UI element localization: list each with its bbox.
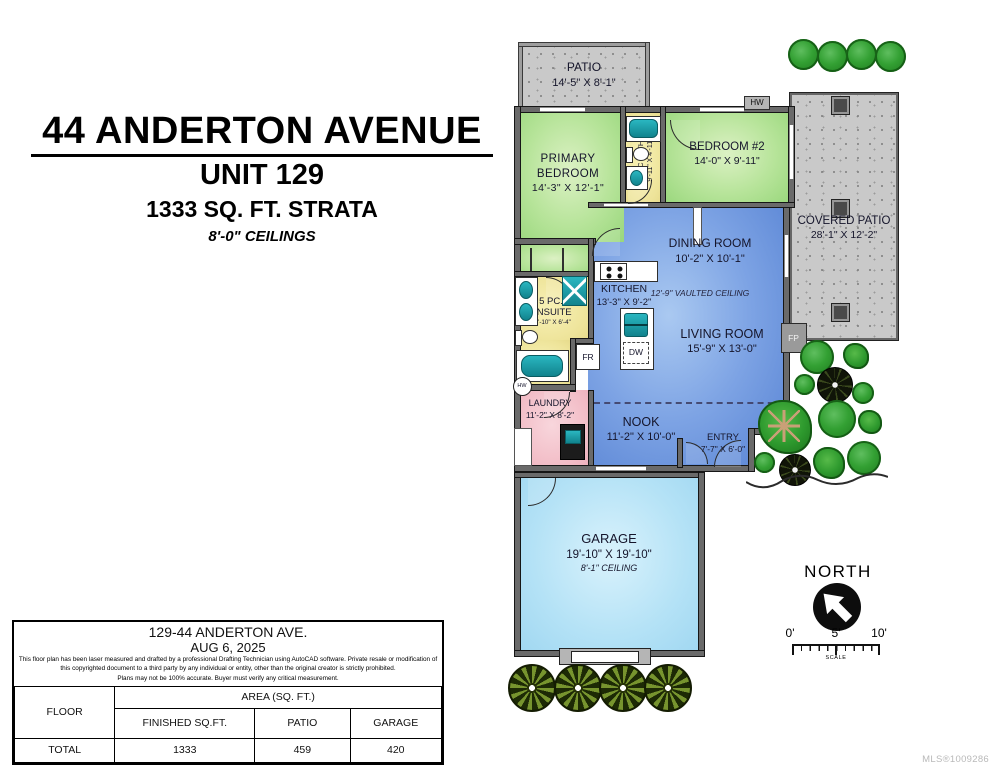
toilet-bowl bbox=[522, 330, 538, 344]
bush-icon bbox=[788, 39, 819, 70]
primary-dims: 14'-3" X 12'-1" bbox=[514, 182, 622, 196]
bathtub-basin bbox=[629, 119, 658, 138]
scale-tick-0: 0' bbox=[780, 626, 800, 642]
window bbox=[604, 203, 648, 207]
wall bbox=[514, 238, 596, 245]
wall bbox=[698, 472, 705, 657]
scale-tick-5: 5' bbox=[826, 626, 846, 642]
hw-tank: HW bbox=[513, 377, 532, 396]
ceiling-note: 8'-0" CEILINGS bbox=[18, 228, 506, 245]
garden-edge bbox=[746, 466, 888, 494]
sink bbox=[630, 170, 643, 186]
window bbox=[540, 107, 585, 112]
shrub-icon bbox=[858, 410, 882, 434]
window bbox=[596, 466, 646, 471]
washer bbox=[560, 424, 585, 460]
fp-label: FP bbox=[782, 333, 805, 344]
room-label: LIVING ROOM 15'-9" X 13'-0" bbox=[652, 326, 792, 357]
shower bbox=[562, 276, 587, 306]
window bbox=[784, 235, 789, 277]
toilet-bowl bbox=[633, 147, 649, 161]
room-label: LAUNDRY 11'-2" X 8'-2" bbox=[514, 398, 586, 421]
garage-ceiling-note: 8'-1" CEILING bbox=[519, 563, 699, 575]
bathtub-basin bbox=[521, 355, 563, 377]
scale-bar bbox=[792, 644, 880, 655]
window bbox=[700, 107, 744, 112]
area-grid: FLOOR AREA (SQ. FT.) FINISHED SQ.FT. PAT… bbox=[14, 686, 442, 763]
mls-watermark: MLS®1009286 bbox=[922, 754, 989, 765]
rosette-bush-icon bbox=[554, 664, 602, 712]
stove bbox=[600, 263, 627, 280]
table-title: 129-44 ANDERTON AVE. bbox=[14, 624, 442, 640]
room-label: BEDROOM #2 14'-0" X 9'-11" bbox=[666, 140, 788, 169]
col-finished: FINISHED SQ.FT. bbox=[115, 708, 255, 738]
window bbox=[789, 125, 794, 179]
hw-tank: HW bbox=[744, 96, 770, 110]
col-patio: PATIO bbox=[255, 708, 350, 738]
property-address: 44 ANDERTON AVENUE bbox=[18, 110, 506, 153]
bedroom2-dims: 14'-0" X 9'-11" bbox=[666, 155, 788, 169]
garage-name: GARAGE bbox=[519, 531, 699, 548]
hw-label: HW bbox=[745, 98, 769, 108]
disclaimer-line: this copyrighted document to a third par… bbox=[14, 664, 442, 673]
covered-patio-dims: 28'-1" X 12'-2" bbox=[790, 229, 898, 243]
rosette-bush-icon bbox=[508, 664, 556, 712]
bush-icon bbox=[817, 41, 848, 72]
dining-dims: 10'-2" X 10'-1" bbox=[640, 252, 780, 266]
room-label: COVERED PATIO 28'-1" X 12'-2" bbox=[790, 214, 898, 243]
nook-dims: 11'-2" X 10'-0" bbox=[596, 430, 686, 444]
laundry-name: LAUNDRY bbox=[514, 398, 586, 410]
unit-number: UNIT 129 bbox=[18, 159, 506, 192]
toilet-tank bbox=[626, 147, 633, 163]
nook-name: NOOK bbox=[596, 414, 686, 430]
table-row: TOTAL 1333 459 420 bbox=[15, 738, 442, 762]
entry-name: ENTRY bbox=[690, 432, 756, 444]
scale-major-tick bbox=[878, 646, 880, 655]
scale-label: SCALE bbox=[792, 655, 880, 662]
strata-area: 1333 SQ. FT. STRATA bbox=[18, 196, 506, 223]
bush-icon bbox=[846, 39, 877, 70]
room-label: PRIMARY BEDROOM 14'-3" X 12'-1" bbox=[514, 152, 622, 196]
room-label: DINING ROOM 10'-2" X 10'-1" bbox=[640, 236, 780, 266]
patio-name: PATIO bbox=[523, 60, 645, 76]
washer-door bbox=[565, 430, 581, 444]
entry-dims: 7'-7" X 6'-0" bbox=[690, 444, 756, 455]
shrub-icon bbox=[794, 374, 815, 395]
toilet-tank bbox=[515, 330, 522, 346]
fridge: FR bbox=[576, 344, 600, 370]
total-garage: 420 bbox=[350, 738, 442, 762]
covered-patio-name: COVERED PATIO bbox=[790, 214, 898, 229]
north-label: NORTH bbox=[800, 561, 876, 583]
disclaimer-line: This floor plan has been laser measured … bbox=[14, 655, 442, 664]
wall bbox=[645, 42, 650, 114]
scale-tick-10: 10' bbox=[866, 626, 892, 642]
bedroom2-name: BEDROOM #2 bbox=[666, 140, 788, 155]
primary-name1: PRIMARY bbox=[514, 152, 622, 167]
rosette-bush-icon bbox=[644, 664, 692, 712]
room-label: ENTRY 7'-7" X 6'-0" bbox=[690, 432, 756, 455]
table-date: AUG 6, 2025 bbox=[14, 640, 442, 655]
branch-tree-icon bbox=[768, 410, 800, 442]
shrub-icon bbox=[818, 400, 856, 438]
closet-rod bbox=[562, 248, 564, 272]
room-label: KITCHEN 13'-3" X 9'-2" bbox=[594, 283, 654, 309]
tree-icon bbox=[817, 367, 853, 403]
area-group-header: AREA (SQ. FT.) bbox=[115, 686, 442, 708]
dishwasher: DW bbox=[623, 342, 649, 364]
island-sink-divider bbox=[624, 324, 648, 326]
laundry-dims: 11'-2" X 8'-2" bbox=[514, 410, 586, 421]
shrub-icon bbox=[843, 343, 869, 369]
post-icon bbox=[832, 97, 849, 114]
hw-label: HW bbox=[514, 383, 530, 390]
garage-dims: 19'-10" X 19'-10" bbox=[519, 548, 699, 563]
primary-name2: BEDROOM bbox=[514, 167, 622, 182]
wall bbox=[518, 42, 650, 47]
col-garage: GARAGE bbox=[350, 708, 442, 738]
disclaimer-line: Plans may not be 100% accurate. Buyer mu… bbox=[14, 674, 442, 683]
patio-dims: 14'-5" X 8'-1" bbox=[523, 76, 645, 90]
shrub-icon bbox=[852, 382, 874, 404]
vault-line bbox=[594, 402, 784, 404]
sink bbox=[519, 281, 533, 299]
dining-name: DINING ROOM bbox=[640, 236, 780, 252]
living-dims: 15'-9" X 13'-0" bbox=[652, 342, 792, 356]
kitchen-name: KITCHEN bbox=[594, 283, 654, 297]
built-in-cabinet bbox=[514, 428, 532, 466]
closet-rod bbox=[530, 248, 532, 272]
scale-major-tick bbox=[835, 646, 837, 655]
title-underline bbox=[31, 154, 493, 157]
title-block: 44 ANDERTON AVENUE UNIT 129 1333 SQ. FT.… bbox=[18, 110, 506, 245]
table-header: 129-44 ANDERTON AVE. AUG 6, 2025 This fl… bbox=[14, 622, 442, 683]
fr-label: FR bbox=[577, 352, 599, 363]
floor-col-header: FLOOR bbox=[15, 686, 115, 738]
total-finished: 1333 bbox=[115, 738, 255, 762]
living-name: LIVING ROOM bbox=[652, 326, 792, 342]
rosette-bush-icon bbox=[599, 664, 647, 712]
bush-icon bbox=[875, 41, 906, 72]
room-label: PATIO 14'-5" X 8'-1" bbox=[523, 60, 645, 90]
sink bbox=[519, 303, 533, 321]
total-patio: 459 bbox=[255, 738, 350, 762]
room-label: GARAGE 19'-10" X 19'-10" 8'-1" CEILING bbox=[519, 531, 699, 575]
room-label: NOOK 11'-2" X 10'-0" bbox=[596, 414, 686, 445]
scale-major-tick bbox=[792, 646, 794, 655]
area-info-table: 129-44 ANDERTON AVE. AUG 6, 2025 This fl… bbox=[12, 620, 444, 765]
post-icon bbox=[832, 304, 849, 321]
dw-label: DW bbox=[624, 347, 648, 358]
garage-door-panel bbox=[571, 651, 639, 663]
total-label: TOTAL bbox=[15, 738, 115, 762]
